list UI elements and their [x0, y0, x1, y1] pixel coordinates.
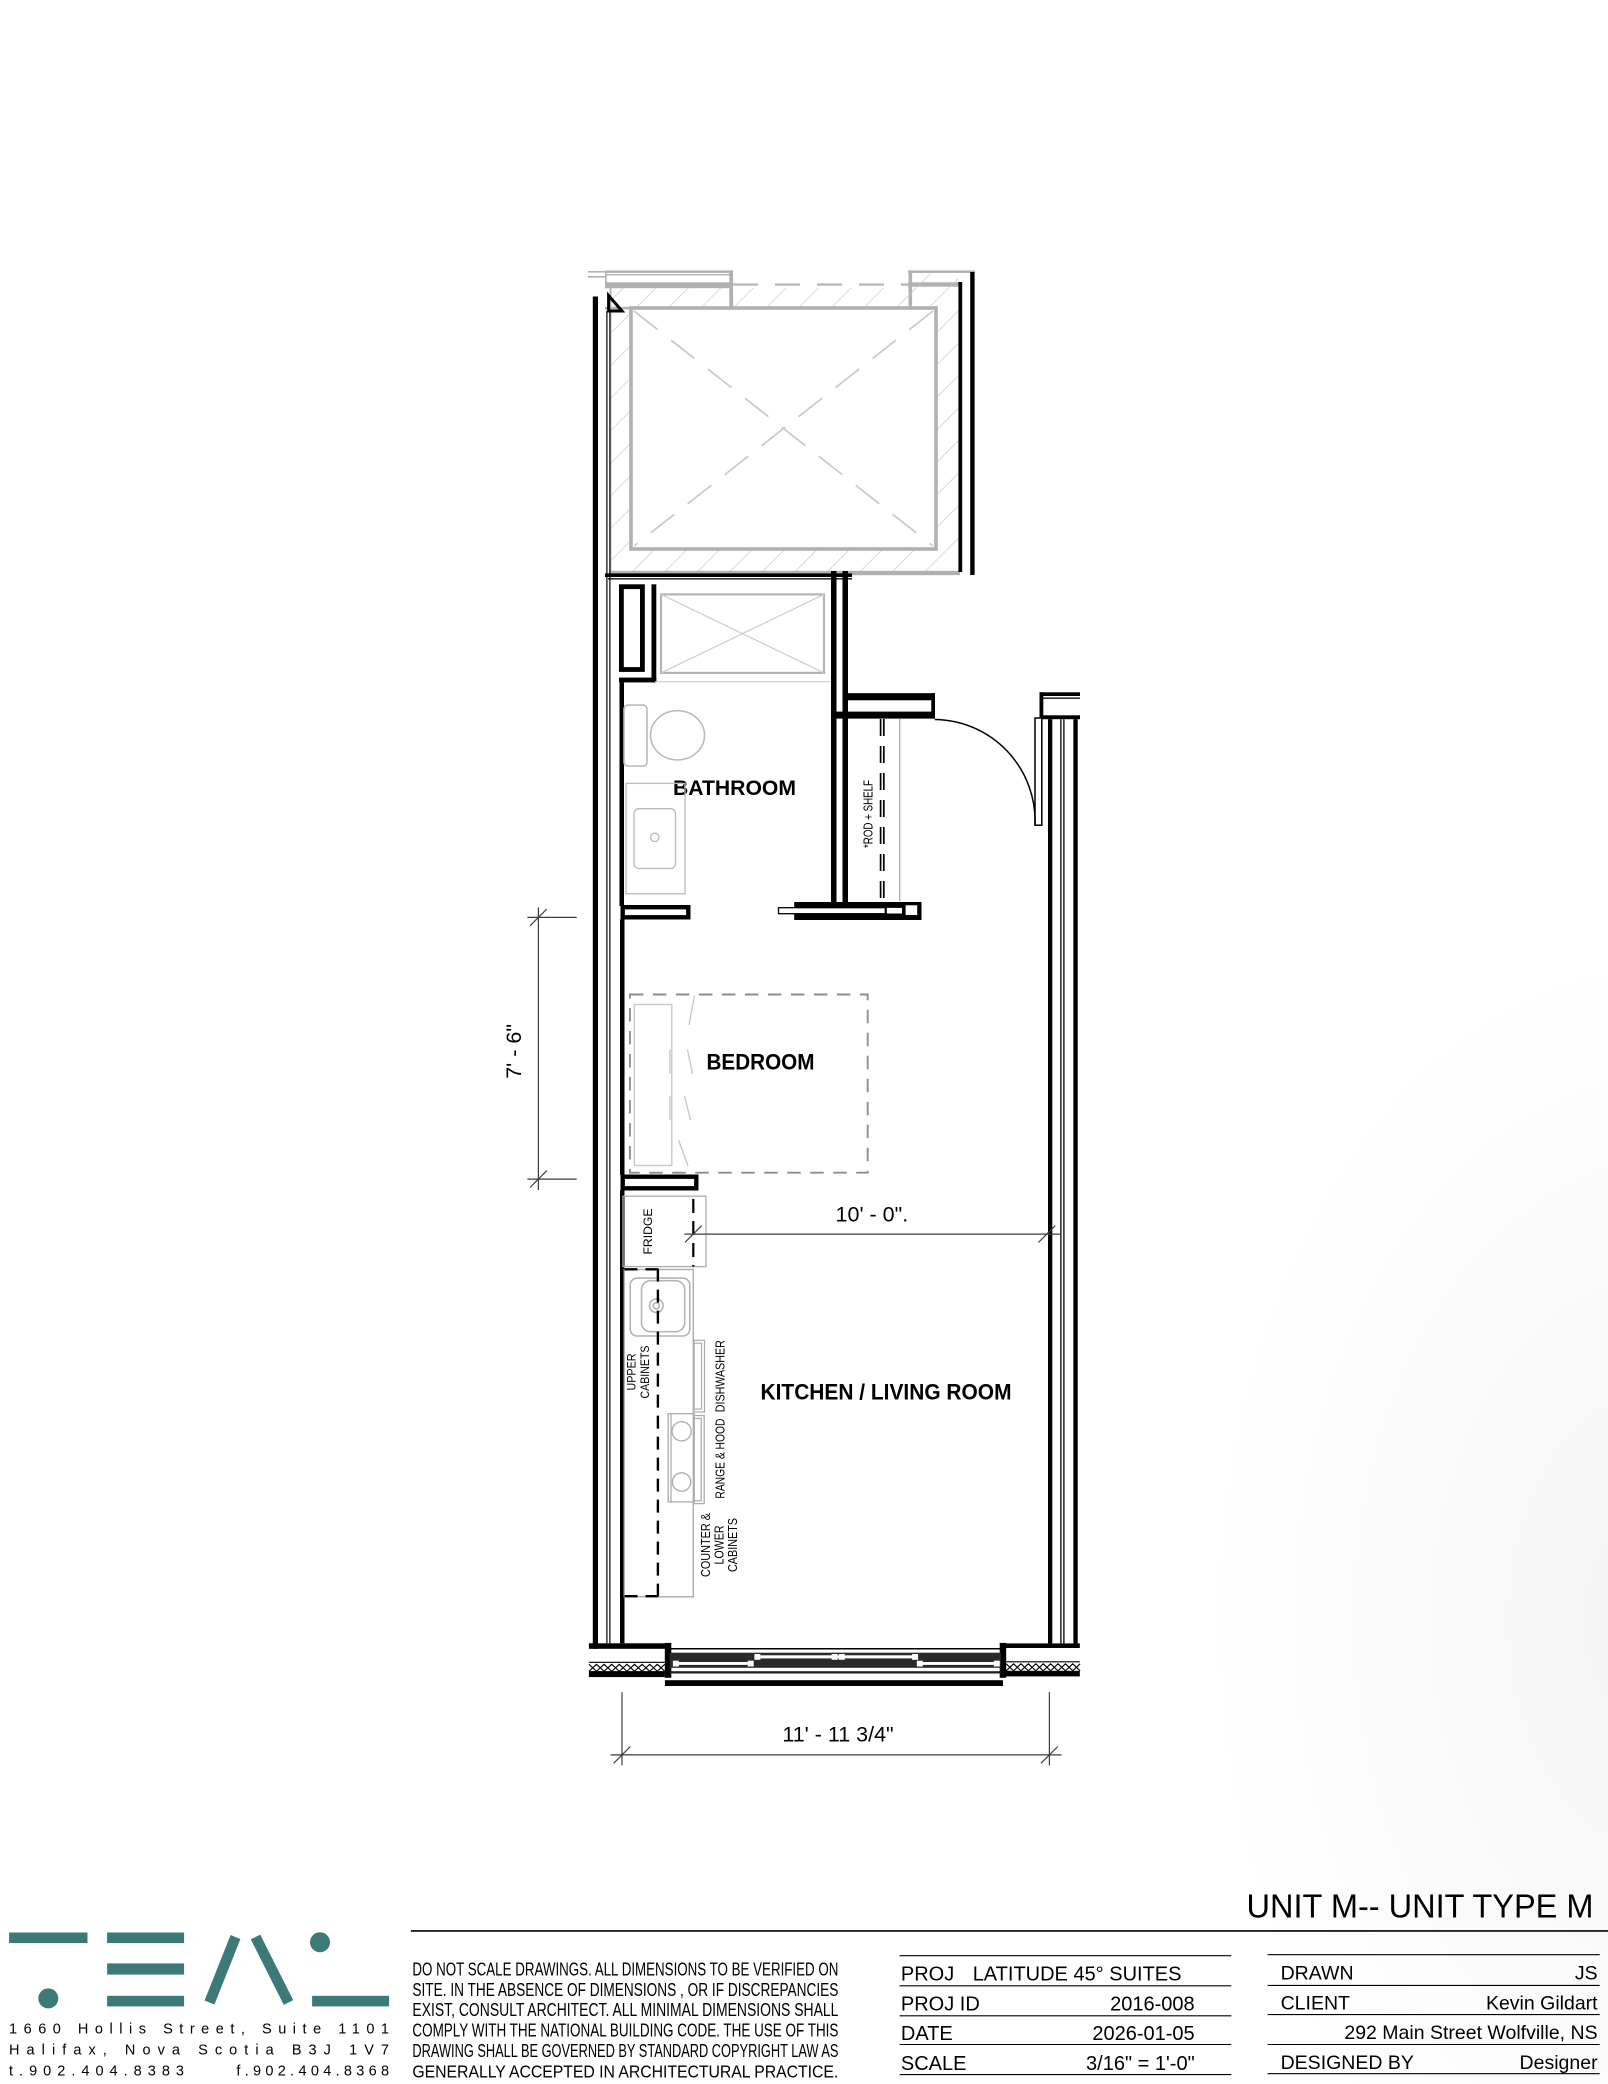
svg-text:10' - 0".: 10' - 0". — [836, 1203, 909, 1227]
svg-text:SCALE: SCALE — [901, 2053, 967, 2075]
svg-text:1660 Hollis Street, Suite 1101: 1660 Hollis Street, Suite 1101 — [9, 2022, 389, 2038]
svg-text:DATE: DATE — [901, 2023, 953, 2045]
svg-text:2026-01-05: 2026-01-05 — [1092, 2023, 1194, 2045]
svg-text:BATHROOM: BATHROOM — [673, 776, 796, 800]
svg-text:GENERALLY ACCEPTED IN ARCHITEC: GENERALLY ACCEPTED IN ARCHITECTURAL PRAC… — [412, 2061, 838, 2081]
svg-text:JS: JS — [1575, 1963, 1598, 1985]
svg-text:UPPER: UPPER — [627, 1354, 639, 1391]
svg-text:t.902.404.8383: t.902.404.8383 — [9, 2064, 184, 2080]
svg-text:f.902.404.8368: f.902.404.8368 — [236, 2064, 389, 2080]
svg-text:UNIT M-- UNIT TYPE M: UNIT M-- UNIT TYPE M — [1247, 1888, 1594, 1925]
svg-text:Designer: Designer — [1520, 2052, 1599, 2074]
svg-text:BEDROOM: BEDROOM — [707, 1049, 815, 1074]
svg-text:*ROD + SHELF: *ROD + SHELF — [862, 780, 876, 848]
svg-text:DISHWASHER: DISHWASHER — [713, 1340, 728, 1412]
svg-text:2016-008: 2016-008 — [1110, 1994, 1195, 2016]
svg-text:Kevin Gildart: Kevin Gildart — [1486, 1992, 1598, 2014]
svg-text:EXIST, CONSULT ARCHITECT. ALL: EXIST, CONSULT ARCHITECT. ALL MINIMAL DI… — [412, 2000, 838, 2020]
svg-text:CLIENT: CLIENT — [1281, 1992, 1350, 2014]
svg-text:11' - 11 3/4": 11' - 11 3/4" — [782, 1722, 893, 1746]
svg-text:CABINETS: CABINETS — [725, 1518, 740, 1572]
svg-text:3/16" = 1'-0": 3/16" = 1'-0" — [1086, 2053, 1195, 2075]
svg-text:DO NOT SCALE DRAWINGS. ALL DIM: DO NOT SCALE DRAWINGS. ALL DIMENSIONS TO… — [412, 1959, 838, 1979]
svg-text:DESIGNED BY: DESIGNED BY — [1281, 2052, 1414, 2074]
svg-text:PROJ ID: PROJ ID — [901, 1994, 980, 2016]
svg-text:LATITUDE 45° SUITES: LATITUDE 45° SUITES — [973, 1964, 1182, 1986]
svg-text:7' - 6": 7' - 6" — [502, 1024, 526, 1079]
svg-text:KITCHEN / LIVING ROOM: KITCHEN / LIVING ROOM — [761, 1380, 1012, 1405]
svg-text:DRAWN: DRAWN — [1281, 1963, 1354, 1985]
svg-text:Halifax, Nova Scotia B3J 1V7: Halifax, Nova Scotia B3J 1V7 — [9, 2043, 389, 2059]
svg-text:COMPLY WITH THE NATIONAL BUILD: COMPLY WITH THE NATIONAL BUILDING CODE. … — [412, 2021, 838, 2041]
svg-text:292 Main Street Wolfville, NS: 292 Main Street Wolfville, NS — [1344, 2022, 1597, 2044]
svg-text:CABINETS: CABINETS — [640, 1345, 652, 1398]
svg-text:RANGE & HOOD: RANGE & HOOD — [713, 1419, 728, 1499]
svg-text:DRAWING SHALL BE GOVERNED BY S: DRAWING SHALL BE GOVERNED BY STANDARD CO… — [412, 2041, 838, 2061]
svg-text:PROJ: PROJ — [901, 1964, 954, 1986]
svg-text:FRIDGE: FRIDGE — [643, 1208, 655, 1254]
svg-text:SITE. IN THE ABSENCE OF DIMENS: SITE. IN THE ABSENCE OF DIMENSIONS , OR … — [412, 1980, 838, 2000]
